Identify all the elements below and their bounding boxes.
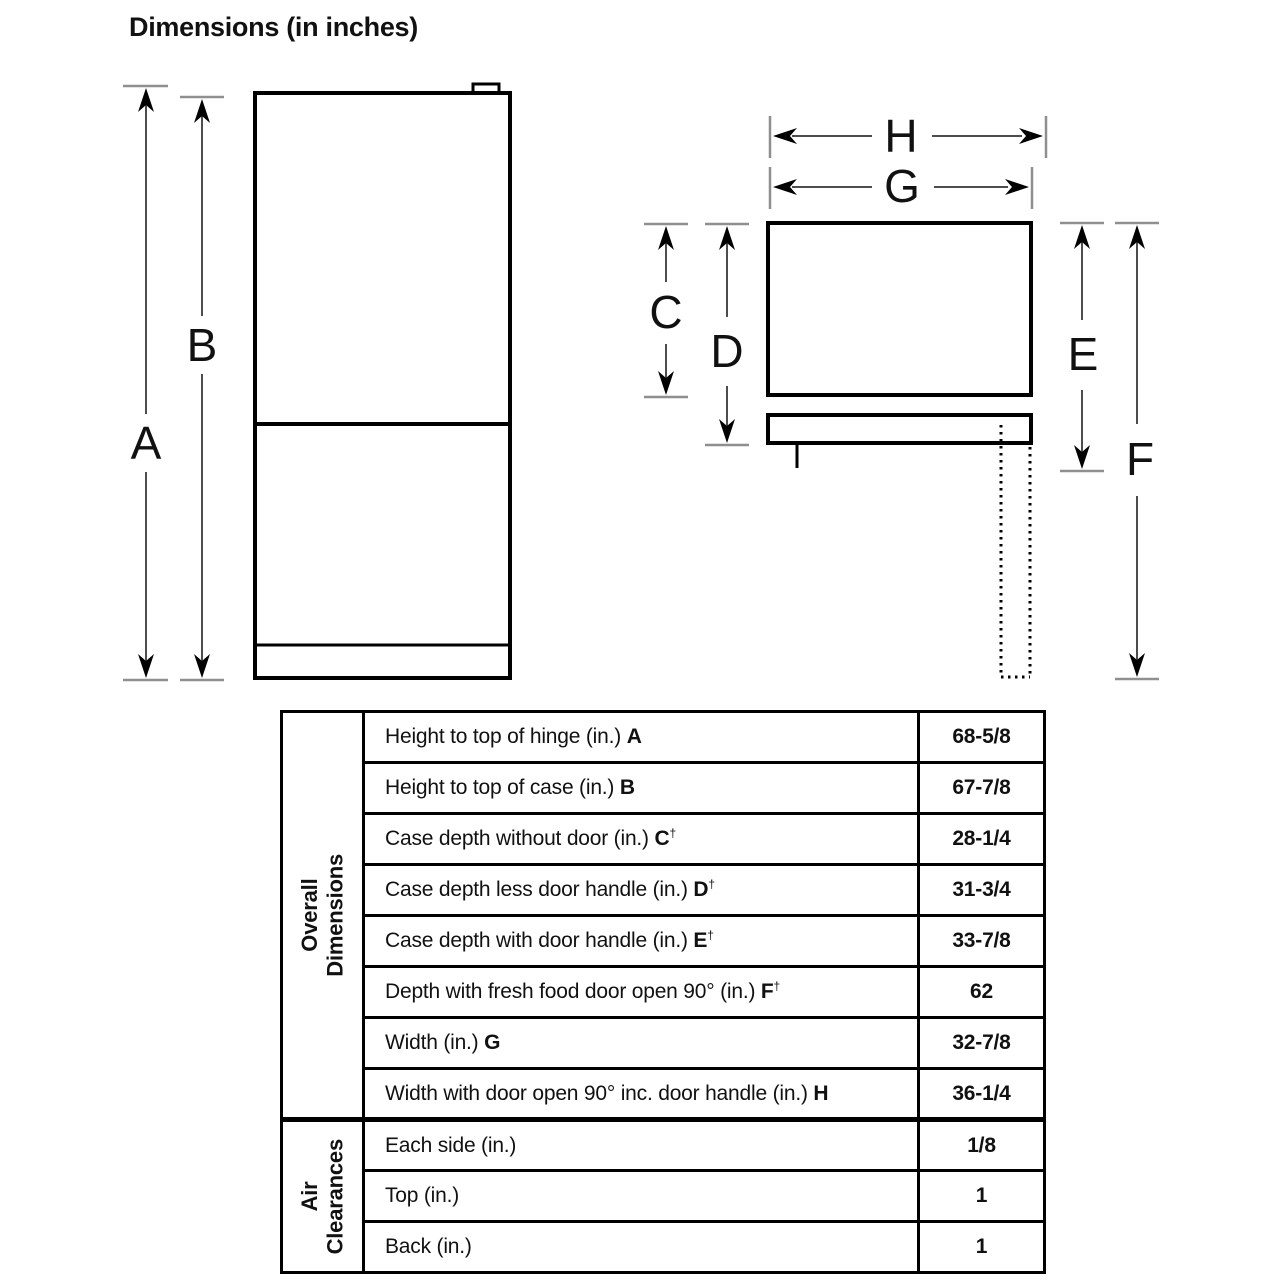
dimension-value: 68-5/8 [919, 712, 1045, 763]
dimension-d: D [705, 224, 749, 445]
dimension-label: Height to top of hinge (in.) A [364, 712, 919, 763]
dimension-value: 28-1/4 [919, 814, 1045, 865]
dim-label-f: F [1126, 433, 1154, 485]
section-header-cell: OverallDimensions [282, 712, 364, 1120]
dimension-label: Case depth with door handle (in.) E† [364, 916, 919, 967]
dagger-footnote-mark: † [708, 877, 714, 891]
dimension-value: 62 [919, 967, 1045, 1018]
dim-label-c: C [649, 286, 682, 338]
table-row: Top (in.)1 [282, 1171, 1045, 1222]
dimension-label: Width (in.) G [364, 1018, 919, 1069]
table-row: Height to top of case (in.) B67-7/8 [282, 763, 1045, 814]
dimension-value: 31-3/4 [919, 865, 1045, 916]
case-outline [768, 223, 1031, 395]
table-row: Back (in.)1 [282, 1222, 1045, 1273]
dimension-label: Back (in.) [364, 1222, 919, 1273]
dimension-letter: C [655, 827, 670, 850]
dimension-a: A [123, 86, 168, 680]
dimension-value: 33-7/8 [919, 916, 1045, 967]
door-outline [768, 415, 1031, 443]
dimensions-diagram: A B H G [0, 0, 1280, 700]
dim-label-a: A [131, 417, 162, 469]
dimension-label: Height to top of case (in.) B [364, 763, 919, 814]
dagger-footnote-mark: † [707, 928, 713, 942]
dimensions-spec-page: { "title": "Dimensions (in inches)", "di… [0, 0, 1280, 1280]
dim-label-g: G [884, 160, 920, 212]
dimension-label: Width with door open 90° inc. door handl… [364, 1069, 919, 1120]
section-header-label: OverallDimensions [297, 854, 348, 977]
dimension-letter: B [620, 776, 635, 799]
dimension-value: 36-1/4 [919, 1069, 1045, 1120]
dim-label-b: B [187, 319, 218, 371]
top-view [768, 223, 1031, 677]
front-view [255, 84, 510, 678]
table-row: OverallDimensionsHeight to top of hinge … [282, 712, 1045, 763]
table-row: Case depth less door handle (in.) D†31-3… [282, 865, 1045, 916]
table-row: Width (in.) G32-7/8 [282, 1018, 1045, 1069]
dimension-c: C [644, 224, 688, 397]
dimension-letter: D [693, 878, 708, 901]
table-body: OverallDimensionsHeight to top of hinge … [282, 712, 1045, 1273]
section-header-cell: AirClearances [282, 1120, 364, 1273]
dimension-value: 1/8 [919, 1120, 1045, 1171]
dimension-letter: A [627, 725, 642, 748]
dim-label-d: D [710, 325, 743, 377]
dimension-letter: E [693, 929, 707, 952]
dimension-value: 1 [919, 1171, 1045, 1222]
dim-label-e: E [1068, 328, 1099, 380]
dim-label-h: H [884, 110, 917, 162]
dimension-label: Depth with fresh food door open 90° (in.… [364, 967, 919, 1018]
dimension-f: F [1115, 223, 1159, 679]
dimension-g: G [770, 160, 1032, 212]
table-row: Depth with fresh food door open 90° (in.… [282, 967, 1045, 1018]
table-row: Case depth with door handle (in.) E†33-7… [282, 916, 1045, 967]
dimension-letter: F [761, 980, 774, 1003]
dimension-b: B [180, 97, 224, 680]
table-row: Case depth without door (in.) C†28-1/4 [282, 814, 1045, 865]
dimension-letter: G [484, 1031, 500, 1054]
dimension-value: 1 [919, 1222, 1045, 1273]
dimension-label: Case depth less door handle (in.) D† [364, 865, 919, 916]
dimension-value: 32-7/8 [919, 1018, 1045, 1069]
dimension-h: H [770, 110, 1046, 162]
dagger-footnote-mark: † [669, 826, 675, 840]
dimension-value: 67-7/8 [919, 763, 1045, 814]
dimension-label: Top (in.) [364, 1171, 919, 1222]
dimension-label: Case depth without door (in.) C† [364, 814, 919, 865]
dimension-letter: H [813, 1082, 828, 1105]
dimension-label: Each side (in.) [364, 1120, 919, 1171]
section-header-label: AirClearances [297, 1139, 348, 1254]
table-row: AirClearancesEach side (in.)1/8 [282, 1120, 1045, 1171]
dagger-footnote-mark: † [774, 979, 780, 993]
fridge-outline [255, 93, 510, 678]
table-row: Width with door open 90° inc. door handl… [282, 1069, 1045, 1120]
dimension-e: E [1060, 223, 1104, 471]
dimensions-table: OverallDimensionsHeight to top of hinge … [280, 710, 1046, 1274]
